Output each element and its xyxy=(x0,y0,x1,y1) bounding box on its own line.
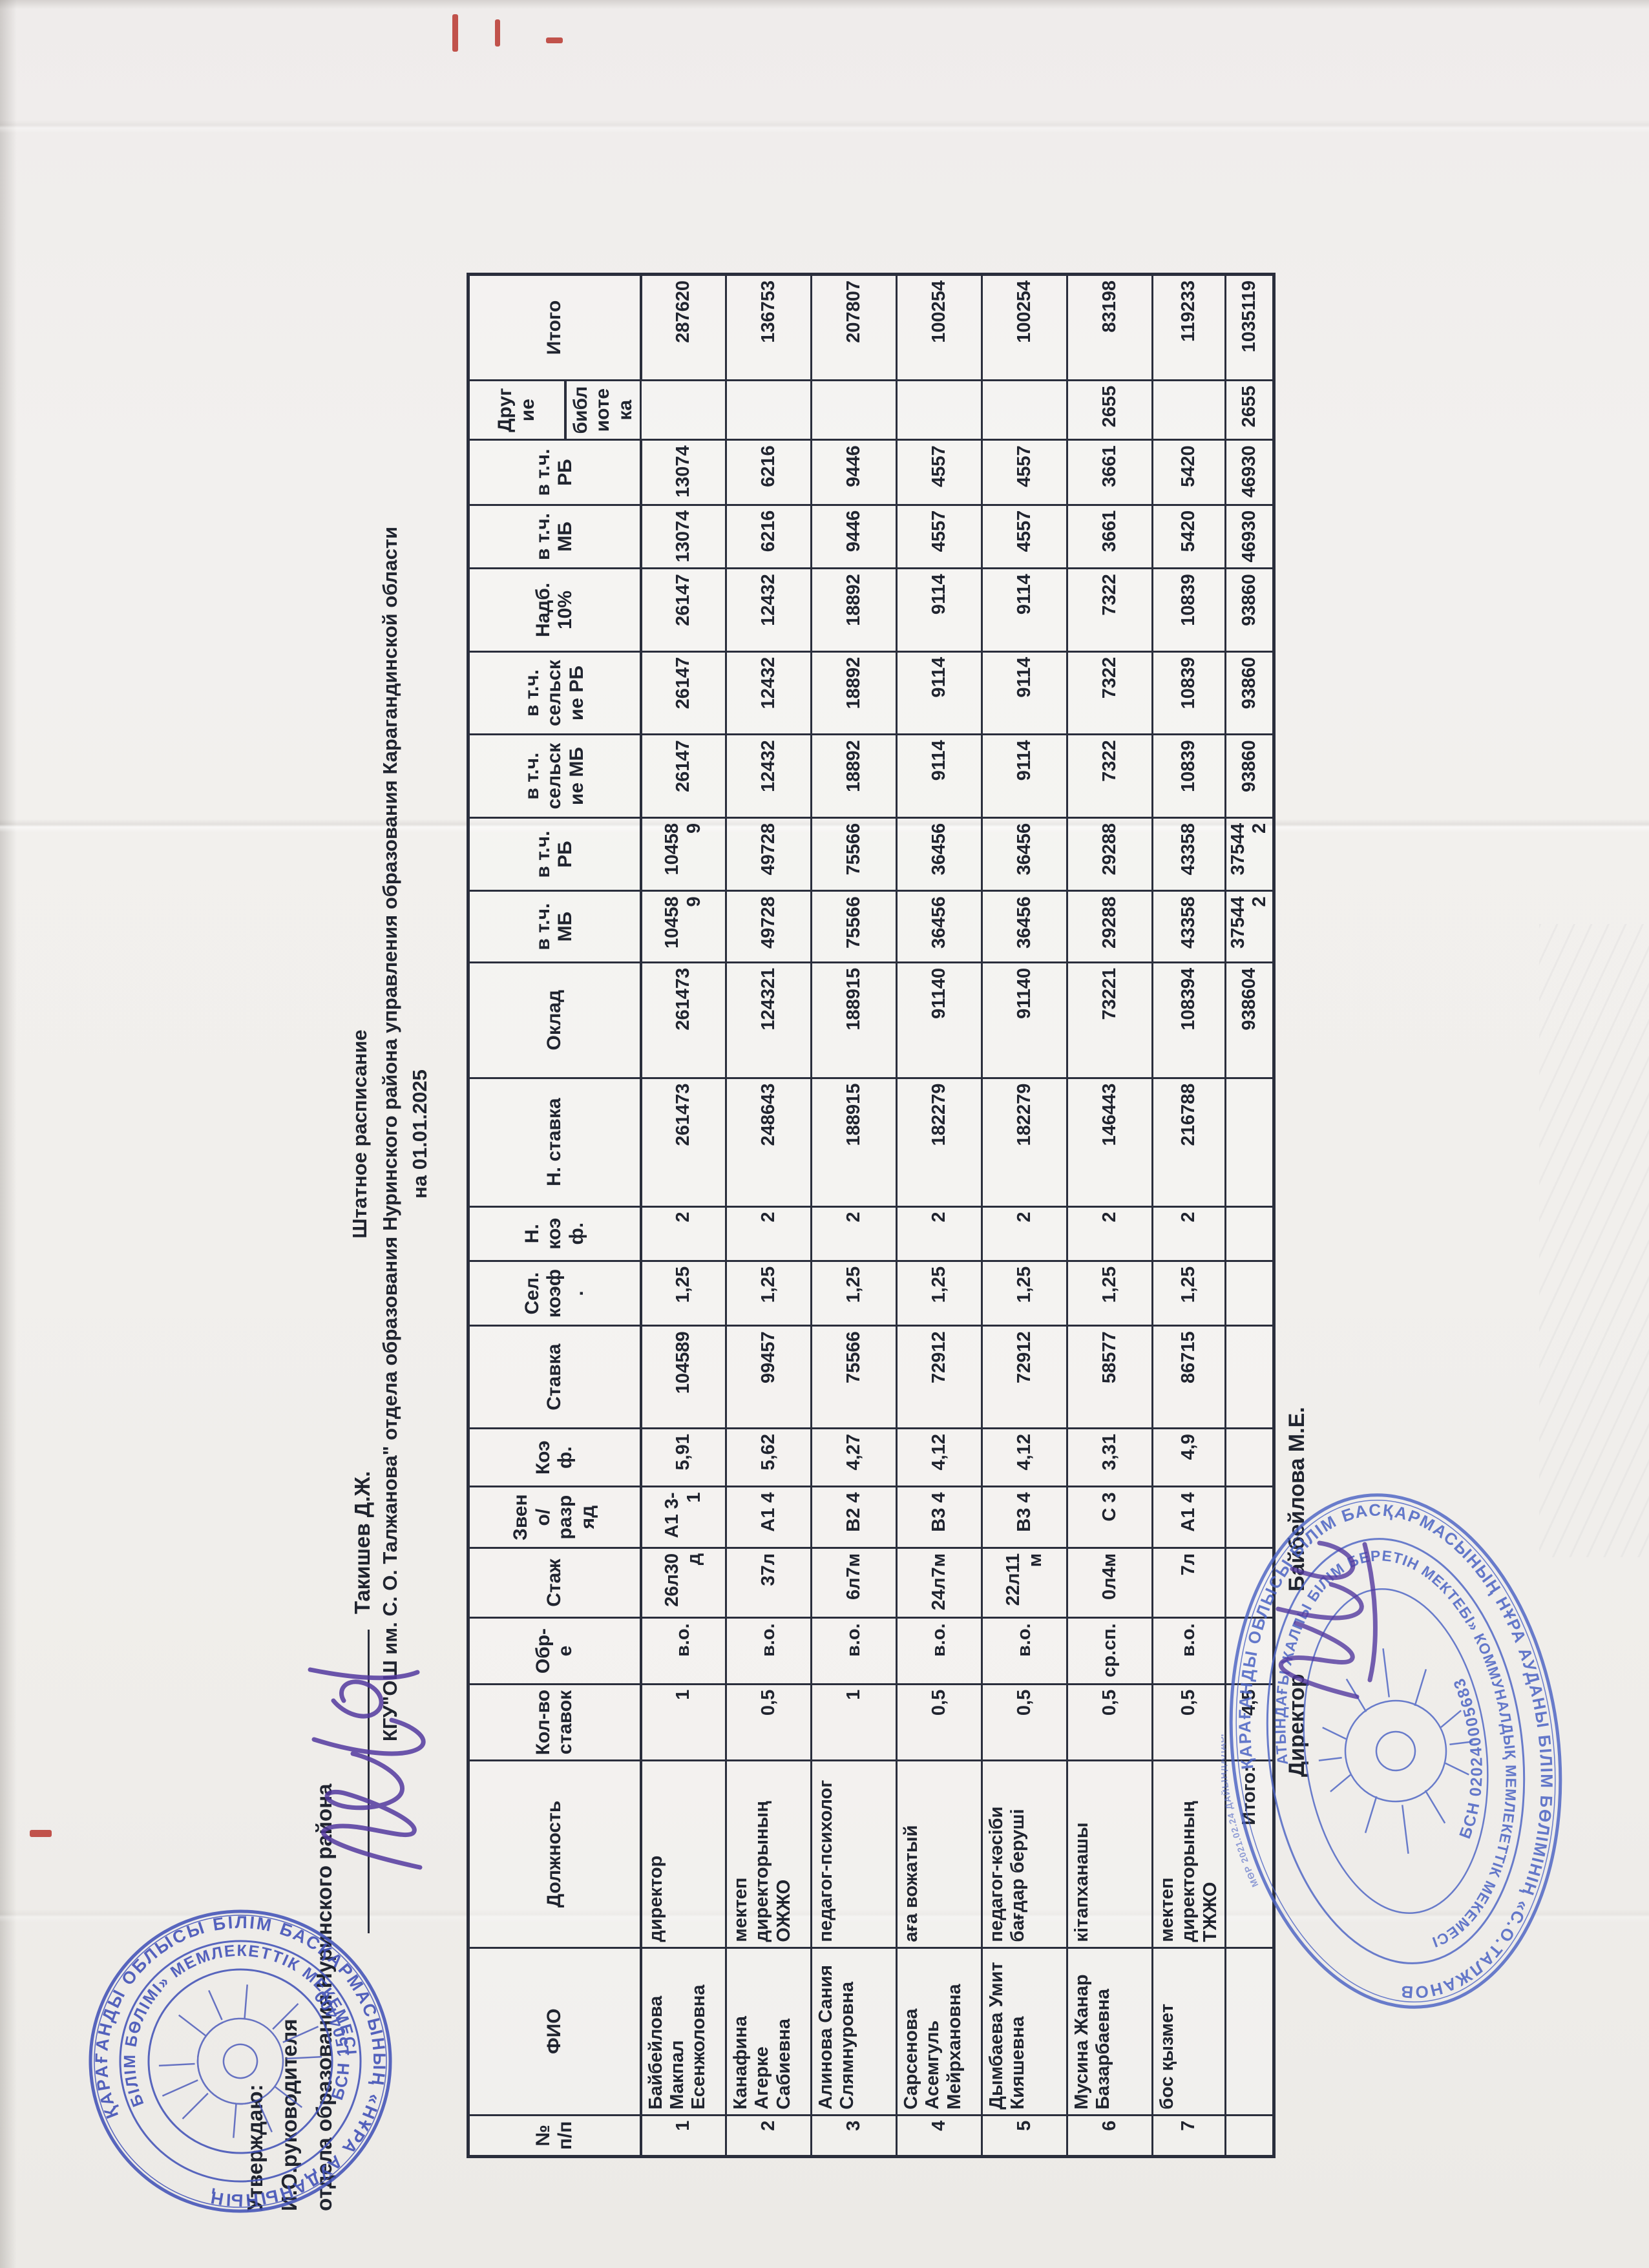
cell xyxy=(1226,1078,1274,1206)
cell: 43358 xyxy=(1153,817,1226,891)
col-header-rates: Кол-во ставок xyxy=(468,1684,641,1761)
cell: 36456 xyxy=(982,817,1067,891)
cell: в.о. xyxy=(726,1618,812,1684)
cell: 4,5 xyxy=(1226,1684,1274,1761)
cell: 5,91 xyxy=(641,1429,726,1487)
cell: 4,12 xyxy=(982,1429,1067,1487)
cell: 0,5 xyxy=(1153,1684,1226,1761)
cell: 93860 xyxy=(1226,735,1274,818)
col-header-position: Должность xyxy=(468,1761,641,1948)
cell: 9114 xyxy=(982,569,1067,652)
col-header-fio: ФИО xyxy=(468,1948,641,2115)
col-header-rb2: в т.ч. РБ xyxy=(468,440,641,505)
cell: 2 xyxy=(726,1206,812,1261)
cell: 10839 xyxy=(1153,735,1226,818)
cell: 375442 xyxy=(1226,817,1274,891)
cell: 207807 xyxy=(812,275,897,381)
cell: 2655 xyxy=(1226,380,1274,439)
cell: 5420 xyxy=(1153,505,1226,568)
cell: 1,25 xyxy=(641,1261,726,1325)
cell: А1 4 xyxy=(726,1487,812,1548)
cell: аға вожатый xyxy=(897,1761,982,1948)
cell: 3,31 xyxy=(1067,1429,1153,1487)
svg-text:БСН 020240005683: БСН 020240005683 xyxy=(1436,1674,1496,1843)
cell xyxy=(982,380,1067,439)
col-header-grade: Звено/ разряд xyxy=(468,1487,641,1548)
table-row: 4Сарсенова Асемгуль Мейрхановнааға вожат… xyxy=(897,275,982,2157)
cell: 261473 xyxy=(641,1078,726,1206)
cell: 2 xyxy=(1067,1206,1153,1261)
cell: 9114 xyxy=(897,735,982,818)
cell: 58577 xyxy=(1067,1326,1153,1429)
cell: 2655 xyxy=(1067,380,1153,439)
cell: 1,25 xyxy=(812,1261,897,1325)
cell: 91140 xyxy=(897,962,982,1078)
cell: кітапханашы xyxy=(1067,1761,1153,1948)
col-header-other: Другие xyxy=(468,380,565,439)
cell: 100254 xyxy=(982,275,1067,381)
cell xyxy=(1226,1326,1274,1429)
cell: 46930 xyxy=(1226,440,1274,505)
col-header-num: № п/п xyxy=(468,2115,641,2156)
cell: 182279 xyxy=(897,1078,982,1206)
table-row: 2Канафина Агерке Сабиевнамектеп директор… xyxy=(726,275,812,2157)
cell: мектеп директорының ОЖЖО xyxy=(726,1761,812,1948)
cell: 46930 xyxy=(1226,505,1274,568)
rotated-document: Утверждаю: И.О.руководителя отдела образ… xyxy=(0,0,1649,2268)
cell: 5420 xyxy=(1153,440,1226,505)
cell: 43358 xyxy=(1153,891,1226,962)
cell: в.о. xyxy=(982,1618,1067,1684)
cell: 182279 xyxy=(982,1078,1067,1206)
cell: 49728 xyxy=(726,891,812,962)
cell: 3 xyxy=(812,2115,897,2156)
cell: 136753 xyxy=(726,275,812,381)
col-header-oklad: Оклад xyxy=(468,962,641,1078)
cell: 86715 xyxy=(1153,1326,1226,1429)
scanned-document: { "document": { "approval": { "line1": "… xyxy=(0,0,1649,2268)
approval-line-3: отдела образования Нуринского района xyxy=(307,1471,341,2211)
cell: 93860 xyxy=(1226,569,1274,652)
cell: 7 xyxy=(1153,2115,1226,2156)
cell: 24л7м xyxy=(897,1548,982,1617)
cell: 9114 xyxy=(982,735,1067,818)
col-header-mb: в т.ч. МБ xyxy=(468,891,641,962)
cell xyxy=(1226,1429,1274,1487)
cell: 2 xyxy=(897,1206,982,1261)
cell: 18892 xyxy=(812,569,897,652)
cell: 36456 xyxy=(982,891,1067,962)
cell: 73221 xyxy=(1067,962,1153,1078)
cell xyxy=(897,380,982,439)
cell: 93860 xyxy=(1226,651,1274,735)
col-header-n-stavka: Н. ставка xyxy=(468,1078,641,1206)
cell: 18892 xyxy=(812,735,897,818)
totals-row: Итого:4,59386043754423754429386093860938… xyxy=(1226,275,1274,2157)
cell: 26147 xyxy=(641,569,726,652)
col-header-experience: Стаж xyxy=(468,1548,641,1617)
cell: 1,25 xyxy=(897,1261,982,1325)
cell: 5 xyxy=(982,2115,1067,2156)
cell: в.о. xyxy=(897,1618,982,1684)
cell: А1 3-1 xyxy=(641,1487,726,1548)
col-header-library: библиотека xyxy=(565,380,641,439)
cell: 99457 xyxy=(726,1326,812,1429)
cell: 7л xyxy=(1153,1548,1226,1617)
table-row: 1Байбейлова Макпал Есенжоловнадиректор1в… xyxy=(641,275,726,2157)
staffing-table: № п/п ФИО Должность Кол-во ставок Обр-е … xyxy=(467,273,1276,2158)
cell xyxy=(1226,1548,1274,1617)
cell: 6л7м xyxy=(812,1548,897,1617)
cell: 375442 xyxy=(1226,891,1274,962)
cell: 104589 xyxy=(641,891,726,962)
cell: 3661 xyxy=(1067,505,1153,568)
cell: 4,27 xyxy=(812,1429,897,1487)
approval-line-1: Утверждаю: xyxy=(238,1471,272,2211)
cell: ср.сп. xyxy=(1067,1618,1153,1684)
cell: 1 xyxy=(812,1684,897,1761)
cell: 6216 xyxy=(726,440,812,505)
cell: В2 4 xyxy=(812,1487,897,1548)
cell: в.о. xyxy=(1153,1618,1226,1684)
cell: Итого: xyxy=(1226,1761,1274,1948)
cell: 4557 xyxy=(982,440,1067,505)
director-name: Байбейлова М.Е. xyxy=(1285,1407,1309,1591)
cell: 100254 xyxy=(897,275,982,381)
cell: 36456 xyxy=(897,817,982,891)
cell xyxy=(1226,2115,1274,2156)
cell: 2 xyxy=(726,2115,812,2156)
cell: 5,62 xyxy=(726,1429,812,1487)
director-label: Директор xyxy=(1285,1674,1309,1777)
cell: С 3 xyxy=(1067,1487,1153,1548)
cell: 248643 xyxy=(726,1078,812,1206)
cell: 4 xyxy=(897,2115,982,2156)
cell: 4557 xyxy=(897,505,982,568)
cell: 36456 xyxy=(897,891,982,962)
title-line-1: Штатное расписание xyxy=(345,0,375,2268)
cell: 26147 xyxy=(641,735,726,818)
cell: 2 xyxy=(641,1206,726,1261)
cell: Канафина Агерке Сабиевна xyxy=(726,1948,812,2115)
col-header-selsk-rb: в т.ч. сельские РБ xyxy=(468,651,641,735)
cell: 1035119 xyxy=(1226,275,1274,381)
cell: 1 xyxy=(641,1684,726,1761)
cell: 938604 xyxy=(1226,962,1274,1078)
cell: 0,5 xyxy=(982,1684,1067,1761)
cell: 10839 xyxy=(1153,651,1226,735)
cell: 188915 xyxy=(812,962,897,1078)
cell: 0,5 xyxy=(726,1684,812,1761)
cell: 7322 xyxy=(1067,735,1153,818)
cell: В3 4 xyxy=(982,1487,1067,1548)
cell: 26л30д xyxy=(641,1548,726,1617)
cell: 7322 xyxy=(1067,651,1153,735)
cell xyxy=(726,380,812,439)
cell: 83198 xyxy=(1067,275,1153,381)
cell: педагог-психолог xyxy=(812,1761,897,1948)
cell: 124321 xyxy=(726,962,812,1078)
cell: директор xyxy=(641,1761,726,1948)
cell: 287620 xyxy=(641,275,726,381)
cell: 2 xyxy=(812,1206,897,1261)
cell: 12432 xyxy=(726,569,812,652)
col-header-nadb: Надб. 10% xyxy=(468,569,641,652)
col-header-selsk-mb: в т.ч. сельские МБ xyxy=(468,735,641,818)
cell: 9114 xyxy=(897,569,982,652)
cell: 4,9 xyxy=(1153,1429,1226,1487)
cell: 104589 xyxy=(641,817,726,891)
cell: 6216 xyxy=(726,505,812,568)
cell: А1 4 xyxy=(1153,1487,1226,1548)
cell: 18892 xyxy=(812,651,897,735)
cell: 13074 xyxy=(641,505,726,568)
table-row: 6Мусина Жанар Базарбаевнакітапханашы0,5с… xyxy=(1067,275,1153,2157)
cell: 37л xyxy=(726,1548,812,1617)
cell: Алинова Сания Слямнуровна xyxy=(812,1948,897,2115)
col-header-stavka: Ставка xyxy=(468,1326,641,1429)
cell: 4557 xyxy=(897,440,982,505)
cell: в.о. xyxy=(641,1618,726,1684)
cell: мектеп директорының ТЖЖО xyxy=(1153,1761,1226,1948)
table-row: 3Алинова Сания Слямнуровнапедагог-психол… xyxy=(812,275,897,2157)
col-header-total: Итого xyxy=(468,275,641,381)
cell: 1,25 xyxy=(982,1261,1067,1325)
col-header-rb: в т.ч. РБ xyxy=(468,817,641,891)
cell xyxy=(1226,1948,1274,2115)
cell xyxy=(1226,1206,1274,1261)
cell: 29288 xyxy=(1067,817,1153,891)
cell: 29288 xyxy=(1067,891,1153,962)
col-header-sel-koef: Сел. коэф. xyxy=(468,1261,641,1325)
cell: Байбейлова Макпал Есенжоловна xyxy=(641,1948,726,2115)
cell: 4557 xyxy=(982,505,1067,568)
cell: 1,25 xyxy=(1153,1261,1226,1325)
cell: бос қызмет xyxy=(1153,1948,1226,2115)
col-header-education: Обр-е xyxy=(468,1618,641,1684)
cell: 75566 xyxy=(812,817,897,891)
cell: 104589 xyxy=(641,1326,726,1429)
cell: 12432 xyxy=(726,651,812,735)
cell: 1,25 xyxy=(726,1261,812,1325)
director-signature-line: Директор Байбейлова М.Е. xyxy=(1285,1407,1310,1777)
col-header-mb2: в т.ч. МБ xyxy=(468,505,641,568)
cell: 1,25 xyxy=(1067,1261,1153,1325)
document-title: Штатное расписание КГУ"ОШ им. С. О. Талж… xyxy=(345,0,436,2268)
cell: Дымбаева Умит Кияшевна xyxy=(982,1948,1067,2115)
stamp-school-bsn: БСН 020240005683 xyxy=(1436,1674,1496,1843)
cell: 261473 xyxy=(641,962,726,1078)
cell: 0л4м xyxy=(1067,1548,1153,1617)
cell: 75566 xyxy=(812,891,897,962)
cell: 146443 xyxy=(1067,1078,1153,1206)
cell: 12432 xyxy=(726,735,812,818)
cell: 0,5 xyxy=(897,1684,982,1761)
cell: 49728 xyxy=(726,817,812,891)
table-row: 5Дымбаева Умит Кияшевнапедагог-кәсіби ба… xyxy=(982,275,1067,2157)
cell: 9114 xyxy=(897,651,982,735)
cell: 13074 xyxy=(641,440,726,505)
cell: 2 xyxy=(1153,1206,1226,1261)
col-header-n-koef: Н. коэф. xyxy=(468,1206,641,1261)
cell: 9114 xyxy=(982,651,1067,735)
cell: 4,12 xyxy=(897,1429,982,1487)
cell: 2 xyxy=(982,1206,1067,1261)
cell: 3661 xyxy=(1067,440,1153,505)
approval-line-2: И.О.руководителя xyxy=(272,1471,306,2211)
cell: 75566 xyxy=(812,1326,897,1429)
title-line-3: на 01.01.2025 xyxy=(405,0,436,2268)
cell: 22л11м xyxy=(982,1548,1067,1617)
cell xyxy=(1226,1618,1274,1684)
col-header-coef: Коэф. xyxy=(468,1429,641,1487)
cell: 6 xyxy=(1067,2115,1153,2156)
cell: 188915 xyxy=(812,1078,897,1206)
cell: 1 xyxy=(641,2115,726,2156)
cell: 0,5 xyxy=(1067,1684,1153,1761)
cell: 216788 xyxy=(1153,1078,1226,1206)
cell xyxy=(1226,1261,1274,1325)
cell: 91140 xyxy=(982,962,1067,1078)
cell: 119233 xyxy=(1153,275,1226,381)
cell: Сарсенова Асемгуль Мейрхановна xyxy=(897,1948,982,2115)
cell: 108394 xyxy=(1153,962,1226,1078)
cell xyxy=(641,380,726,439)
cell: 7322 xyxy=(1067,569,1153,652)
cell: 72912 xyxy=(897,1326,982,1429)
cell xyxy=(1226,1487,1274,1548)
cell: в.о. xyxy=(812,1618,897,1684)
cell: В3 4 xyxy=(897,1487,982,1548)
cell: 9446 xyxy=(812,440,897,505)
cell: 72912 xyxy=(982,1326,1067,1429)
cell xyxy=(812,380,897,439)
cell xyxy=(1153,380,1226,439)
cell: 26147 xyxy=(641,651,726,735)
table-row: 7бос қызметмектеп директорының ТЖЖО0,5в.… xyxy=(1153,275,1226,2157)
cell: 10839 xyxy=(1153,569,1226,652)
cell: Мусина Жанар Базарбаевна xyxy=(1067,1948,1153,2115)
cell: педагог-кәсіби бағдар беруші xyxy=(982,1761,1067,1948)
title-line-2: КГУ"ОШ им. С. О. Талжанова" отдела образ… xyxy=(375,0,406,2268)
cell: 9446 xyxy=(812,505,897,568)
